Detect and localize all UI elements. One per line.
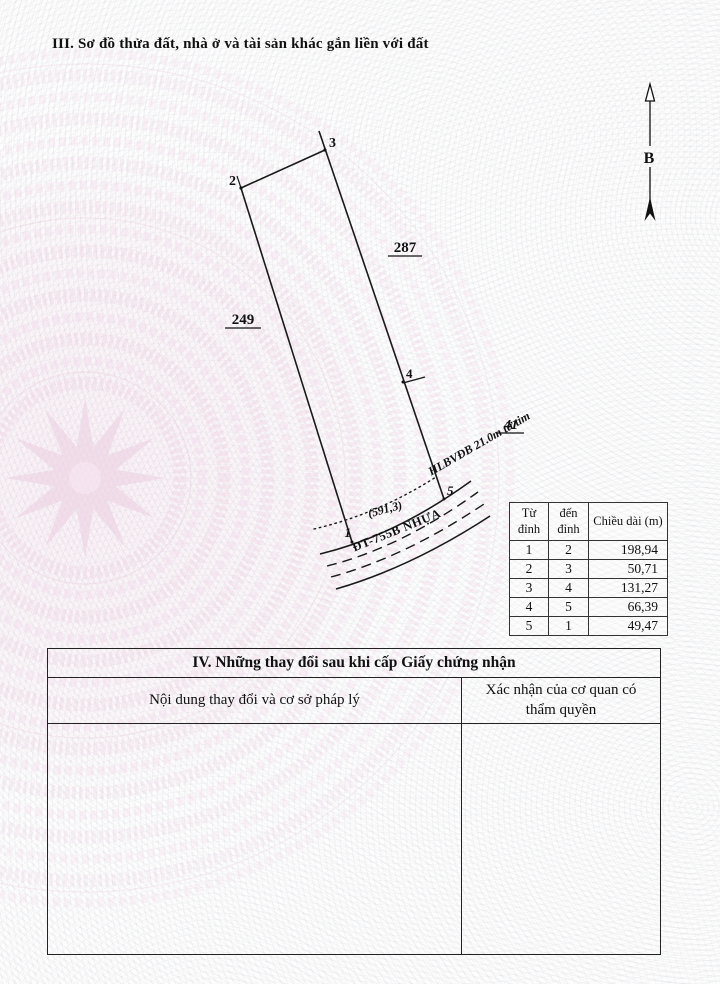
seg-len: 131,27 bbox=[589, 579, 668, 598]
section4-table: IV. Những thay đổi sau khi cấp Giấy chứn… bbox=[47, 648, 661, 955]
north-arrow-icon: B bbox=[644, 84, 656, 221]
vertex-label-2: 2 bbox=[229, 174, 236, 189]
seg-len: 198,94 bbox=[589, 541, 668, 560]
seg-len: 49,47 bbox=[589, 617, 668, 636]
segment-row: 4 5 66,39 bbox=[510, 598, 668, 617]
section4-confirm-cell bbox=[462, 723, 661, 954]
col-length: Chiều dài (m) bbox=[589, 503, 668, 541]
col-to-vertex: đến đỉnh bbox=[549, 503, 589, 541]
segment-length-table: Từ đỉnh đến đỉnh Chiều dài (m) 1 2 198,9… bbox=[509, 502, 668, 636]
seg-len: 66,39 bbox=[589, 598, 668, 617]
segment-row: 2 3 50,71 bbox=[510, 560, 668, 579]
section3-title: III. Sơ đồ thửa đất, nhà ở và tài sản kh… bbox=[52, 36, 429, 53]
col-from-vertex: Từ đỉnh bbox=[510, 503, 549, 541]
road-name-label: ĐT-755B NHỰA bbox=[350, 506, 443, 554]
segment-row: 3 4 131,27 bbox=[510, 579, 668, 598]
section4-col-content: Nội dung thay đổi và cơ sở pháp lý bbox=[48, 678, 462, 724]
seg-from: 1 bbox=[510, 541, 549, 560]
vertex-label-5: 5 bbox=[447, 483, 454, 498]
vertex-label-1: 1 bbox=[345, 525, 352, 540]
seg-from: 5 bbox=[510, 617, 549, 636]
seg-to: 5 bbox=[549, 598, 589, 617]
certificate-page: III. Sơ đồ thửa đất, nhà ở và tài sản kh… bbox=[0, 0, 720, 984]
segment-row: 1 2 198,94 bbox=[510, 541, 668, 560]
seg-from: 4 bbox=[510, 598, 549, 617]
parcel-number-right: 287 bbox=[394, 240, 417, 256]
seg-to: 2 bbox=[549, 541, 589, 560]
corridor-label: HLBVĐB 21.0m từ tim bbox=[425, 409, 533, 479]
segment-row: 5 1 49,47 bbox=[510, 617, 668, 636]
vertex-markers bbox=[239, 148, 445, 543]
section4-content-cell bbox=[48, 723, 462, 954]
vertex-label-4: 4 bbox=[406, 366, 413, 381]
section4-col-confirm: Xác nhận của cơ quan có thẩm quyền bbox=[462, 678, 661, 724]
seg-from: 2 bbox=[510, 560, 549, 579]
area-label: (591,3) bbox=[366, 498, 403, 521]
seg-to: 1 bbox=[549, 617, 589, 636]
parcel-boundary bbox=[237, 131, 444, 542]
seg-len: 50,71 bbox=[589, 560, 668, 579]
seg-to: 3 bbox=[549, 560, 589, 579]
seg-from: 3 bbox=[510, 579, 549, 598]
seg-to: 4 bbox=[549, 579, 589, 598]
segment-header-row: Từ đỉnh đến đỉnh Chiều dài (m) bbox=[510, 503, 668, 541]
north-label: B bbox=[644, 150, 655, 167]
vertex-label-3: 3 bbox=[329, 136, 336, 151]
parcel-number-left: 249 bbox=[232, 312, 255, 328]
section4-title: IV. Những thay đổi sau khi cấp Giấy chứn… bbox=[48, 649, 661, 678]
